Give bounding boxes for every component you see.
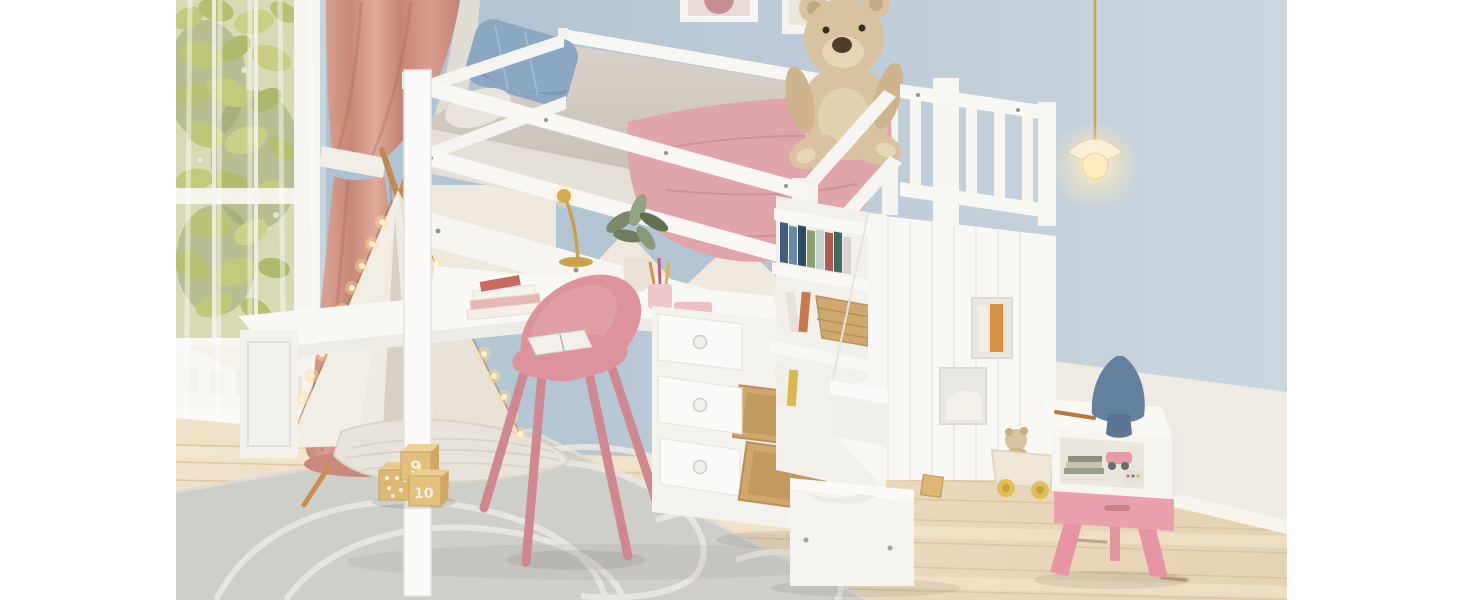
nightstand-cubby [1060, 437, 1144, 489]
room-photo: 9 10 [176, 0, 1287, 600]
stair-base-box [790, 478, 914, 586]
storage-basket [816, 285, 872, 346]
bed-front-post [404, 70, 431, 596]
room-scene: 9 10 [176, 0, 1287, 600]
block-number-10: 10 [414, 486, 434, 502]
pendant-bulb [1082, 153, 1108, 179]
photo-canvas: 9 10 [0, 0, 1464, 600]
toy-block-ten: 10 [409, 469, 449, 507]
stair-storage-cubby-1 [972, 298, 1012, 358]
wooden-block-toy [921, 475, 944, 498]
nightstand-side [1172, 427, 1188, 499]
wall-picture-frame-left [680, 0, 758, 22]
stair-storage-cubby-2 [940, 368, 986, 424]
stair-steps [830, 380, 888, 446]
